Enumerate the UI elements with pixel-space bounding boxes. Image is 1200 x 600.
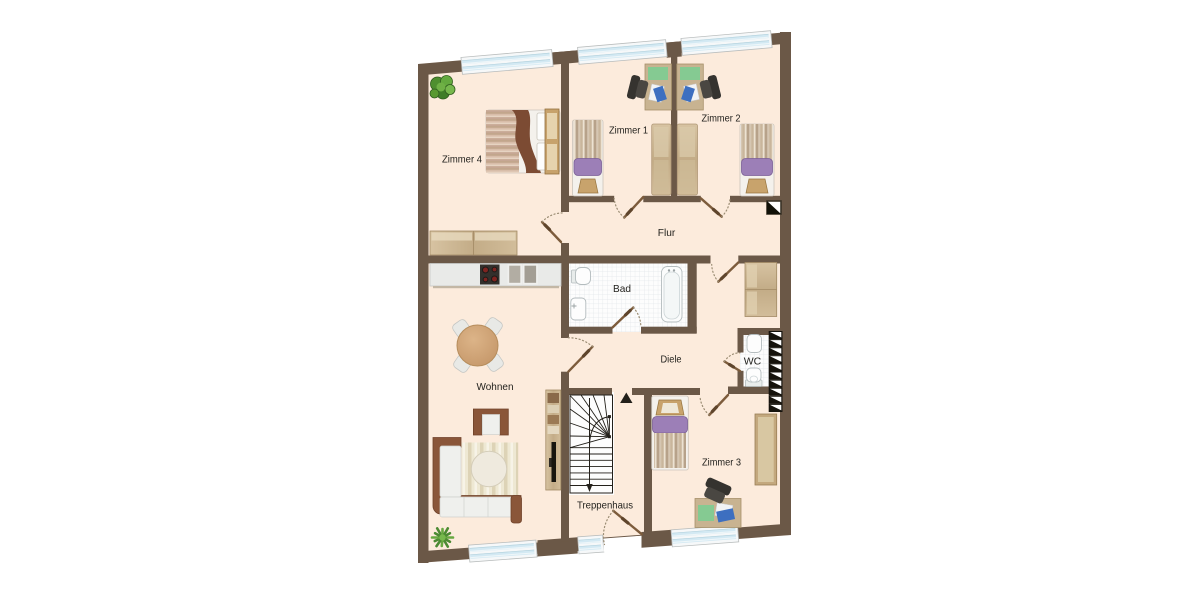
svg-text:Flur: Flur — [658, 228, 676, 239]
svg-text:Wohnen: Wohnen — [477, 382, 514, 393]
svg-text:Zimmer 2: Zimmer 2 — [702, 114, 741, 125]
svg-text:WC: WC — [744, 357, 762, 368]
svg-text:Diele: Diele — [661, 355, 682, 366]
svg-text:Zimmer 1: Zimmer 1 — [609, 126, 648, 137]
svg-text:Bad: Bad — [613, 284, 631, 295]
svg-text:Zimmer 3: Zimmer 3 — [702, 458, 741, 469]
svg-text:Treppenhaus: Treppenhaus — [577, 501, 633, 512]
svg-text:Zimmer 4: Zimmer 4 — [442, 155, 482, 166]
